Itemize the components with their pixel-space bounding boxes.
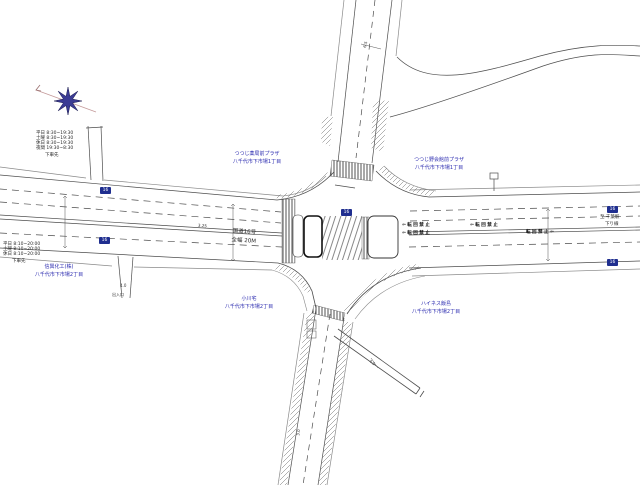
sign-head xyxy=(490,173,498,179)
north-curb-line xyxy=(0,175,277,200)
label-building-west: 信興化工(株) 八千代市下市場2丁目 xyxy=(28,263,90,279)
driveway-label: 出入口 xyxy=(112,292,124,298)
work-zone-outline-thin xyxy=(293,215,303,257)
road-marking: ⇦転回禁止 xyxy=(402,230,431,236)
building-west-address: 八千代市下市場2丁目 xyxy=(28,271,90,279)
lane-line-dashed xyxy=(0,189,281,212)
road-marking: ⇦転回禁止 xyxy=(402,222,431,228)
schedule-lower: 平日 8:10~20:00 土曜 8:10~20:00 休日 8:10~20:0… xyxy=(3,242,40,264)
destination-line1: 至 千葉駅 xyxy=(600,214,619,221)
compass-star-icon xyxy=(54,87,82,115)
schedule-note: 下車先 xyxy=(3,259,40,264)
north-crosswalk xyxy=(330,160,374,181)
north-leg-road xyxy=(331,0,402,188)
north-leg-west-gore-hatch xyxy=(321,116,333,146)
intersection-drawing xyxy=(0,0,640,485)
route-16-shield: 16 xyxy=(341,209,352,216)
work-zone-outline-bold xyxy=(304,216,322,257)
lane-line-dashed xyxy=(409,242,640,247)
west-outer-line xyxy=(331,0,344,116)
compass xyxy=(36,85,96,115)
facility-nw-name: つつじ薬局前プラザ xyxy=(228,150,286,158)
destination-line2: 下り線 xyxy=(600,221,619,228)
branch-lower-line xyxy=(390,54,640,117)
driveway-edge-line xyxy=(130,257,133,298)
schedule-row: 休日 8:10~20:00 xyxy=(3,252,40,257)
route-16-shield: 16 xyxy=(100,187,111,194)
dim-line-east xyxy=(546,209,550,261)
route-16-shield: 16 xyxy=(99,237,110,244)
stop-line xyxy=(335,185,355,188)
east-outer-line xyxy=(396,0,402,56)
nw-corner-hatch xyxy=(276,171,330,199)
label-building-se: ハイネス飯島 八千代市下市場2丁目 xyxy=(408,300,464,316)
stub-top-tick xyxy=(86,127,103,128)
lane-line-dashed xyxy=(410,206,640,211)
west-edge-line xyxy=(338,0,356,162)
northeast-branch-road xyxy=(390,45,640,117)
north-stub-street xyxy=(86,126,103,181)
south-leg-west-shoulder-hatch xyxy=(279,311,315,485)
dimension-south-leg: 3.0 xyxy=(295,429,301,436)
south-leg-east-shoulder-hatch xyxy=(318,320,352,485)
branch-upper-line xyxy=(397,45,640,75)
north-curb-line xyxy=(429,192,640,197)
facility-ne-address: 八千代市下市場1丁目 xyxy=(410,164,468,172)
road-marking: ⇦転回禁止 xyxy=(470,222,499,228)
facility-nw-address: 八千代市下市場1丁目 xyxy=(228,158,286,166)
house-south-address: 八千代市下市場2丁目 xyxy=(222,303,276,311)
main-road-east xyxy=(409,185,640,276)
label-house-south: 小川宅 八千代市下市場2丁目 xyxy=(222,295,276,311)
street-edge-line xyxy=(338,329,420,388)
channelization-hatch xyxy=(322,216,362,260)
work-zone-outline-east xyxy=(368,216,398,258)
lane-line-dashed xyxy=(0,202,281,223)
dimension-driveway: 4.0 xyxy=(120,283,126,288)
north-arrow-icon xyxy=(36,85,41,91)
destination-east: 至 千葉駅 下り線 xyxy=(600,214,619,228)
schedule-row: 夜間 19:30~8:30 xyxy=(36,146,73,151)
label-facility-ne: つつじ野会館前プラザ 八千代市下市場1丁目 xyxy=(410,156,468,172)
house-south-name: 小川宅 xyxy=(222,295,276,303)
route-16-shield: 16 xyxy=(607,259,618,266)
building-se-name: ハイネス飯島 xyxy=(408,300,464,308)
building-west-name: 信興化工(株) xyxy=(28,263,90,271)
label-facility-nw: つつじ薬局前プラザ 八千代市下市場1丁目 xyxy=(228,150,286,166)
dimension-lane: 3.25 xyxy=(198,223,207,229)
dim-line-west xyxy=(63,196,67,248)
intersection-interior xyxy=(293,215,398,260)
main-road-west xyxy=(0,167,283,270)
route-16-shield: 16 xyxy=(607,206,618,213)
south-crosswalk xyxy=(312,305,345,321)
route-name-block: 国道16号 全幅 20M xyxy=(221,226,266,247)
facility-ne-name: つつじ野会館前プラザ xyxy=(410,156,468,164)
road-plan-sheet: つつじ薬局前プラザ 八千代市下市場1丁目 つつじ野会館前プラザ 八千代市下市場1… xyxy=(0,0,640,485)
street-end-cap xyxy=(416,388,424,397)
south-sidewalk-line xyxy=(412,269,640,276)
stub-edge-line xyxy=(88,126,91,180)
north-sidewalk-line xyxy=(410,185,640,190)
stub-edge-line xyxy=(101,126,103,181)
road-marking: 転回禁止⇦ xyxy=(526,229,555,235)
building-se-address: 八千代市下市場2丁目 xyxy=(408,308,464,316)
schedule-note: 下車先 xyxy=(36,153,73,158)
west-edge-line xyxy=(288,309,316,485)
median-line xyxy=(409,230,640,235)
south-curb-line xyxy=(0,248,278,263)
schedule-upper: 平日 8:30~19:30 土曜 8:30~19:30 休日 8:30~19:3… xyxy=(36,131,73,158)
north-leg-east-gore-hatch xyxy=(371,100,389,152)
south-curb-line xyxy=(409,261,640,268)
north-sidewalk-line xyxy=(0,167,283,196)
